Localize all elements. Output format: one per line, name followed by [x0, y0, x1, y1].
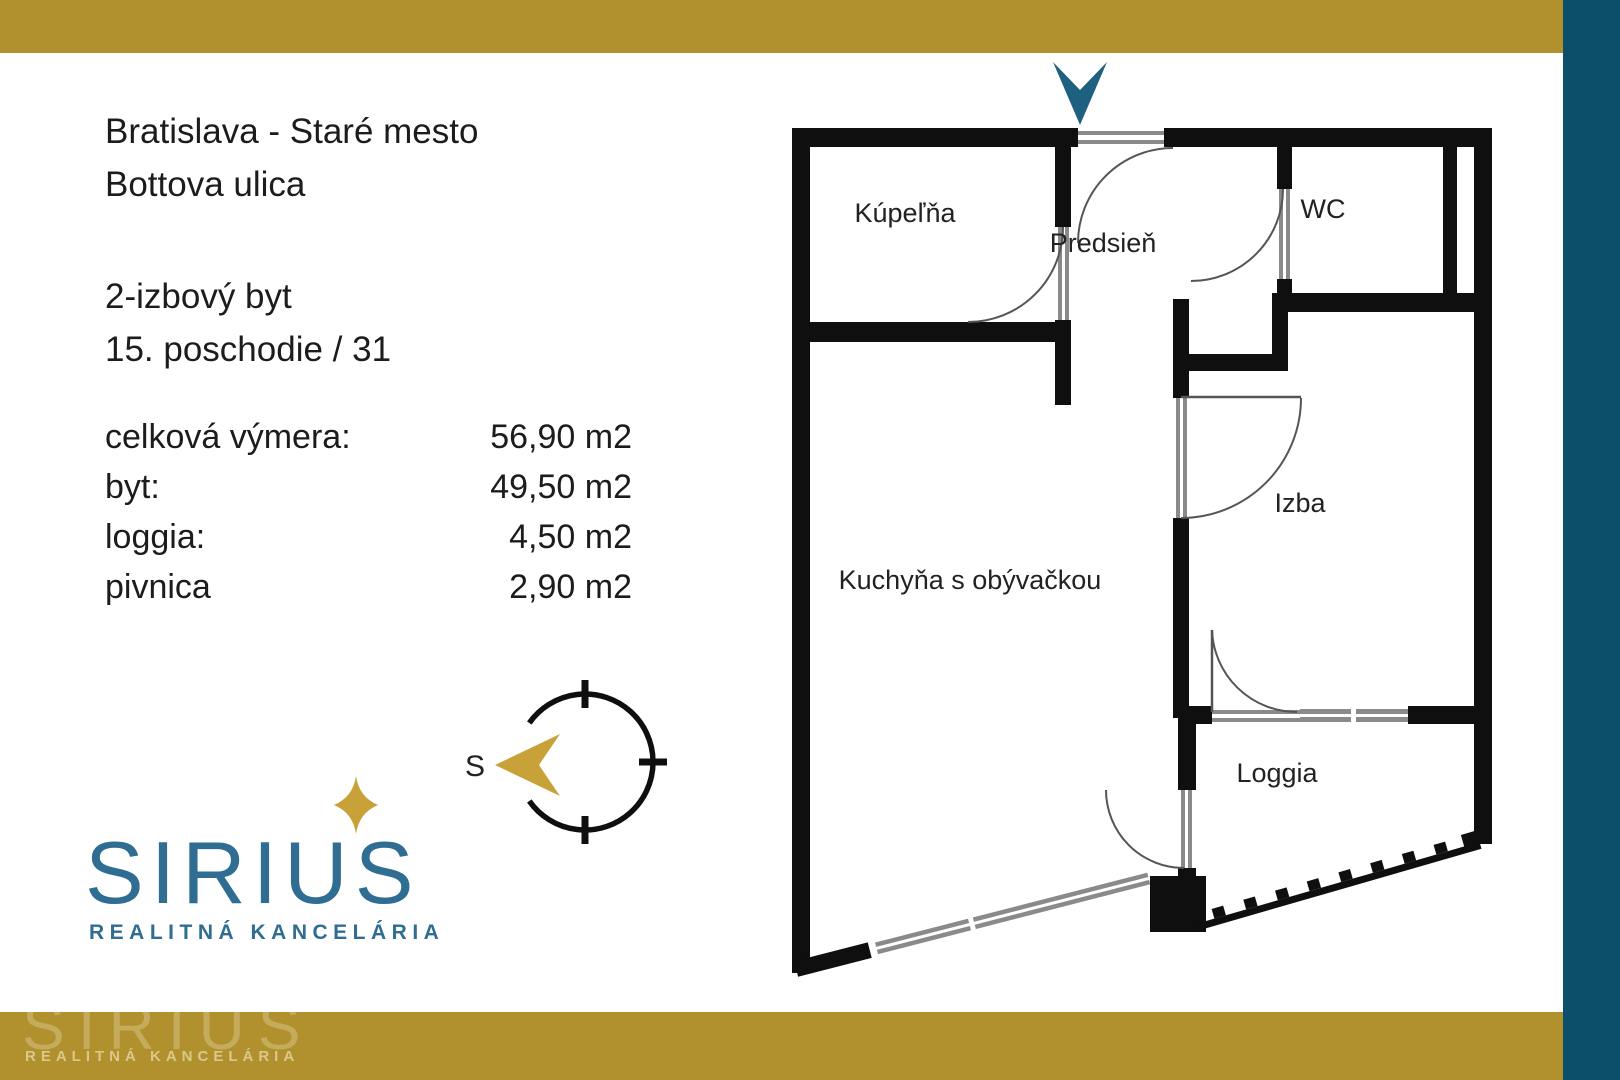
location-line2: Bottova ulica	[105, 158, 478, 211]
area-label: pivnica	[105, 568, 392, 607]
top-gold-bar	[0, 0, 1563, 53]
unit-type: 2-izbový byt	[105, 270, 391, 323]
area-row: pivnica 2,90 m2	[105, 562, 632, 612]
area-label: byt:	[105, 468, 392, 507]
logo-star-icon	[334, 776, 378, 834]
unit-block: 2-izbový byt 15. poschodie / 31	[105, 270, 391, 376]
area-value: 56,90 m2	[392, 418, 632, 457]
room-label-loggia: Loggia	[1236, 758, 1318, 788]
area-row: loggia: 4,50 m2	[105, 512, 632, 562]
room-label-izba: Izba	[1274, 488, 1326, 518]
area-label: loggia:	[105, 518, 392, 557]
location-line1: Bratislava - Staré mesto	[105, 105, 478, 158]
area-label: celková výmera:	[105, 418, 392, 457]
area-row: byt: 49,50 m2	[105, 462, 632, 512]
watermark-tagline: REALITNÁ KANCELÁRIA	[25, 1048, 299, 1065]
area-row: celková výmera: 56,90 m2	[105, 412, 632, 462]
flyer-canvas: Bratislava - Staré mesto Bottova ulica 2…	[0, 0, 1620, 1080]
compass-ring	[529, 694, 653, 830]
floor-plan: Kúpeľňa Predsieň WC Izba Kuchyňa s obýva…	[780, 55, 1500, 1010]
room-label-predsien: Predsieň	[1050, 228, 1157, 258]
area-table: celková výmera: 56,90 m2 byt: 49,50 m2 l…	[105, 412, 632, 612]
loggia-railing	[1192, 831, 1482, 931]
loggia-room-door	[1212, 630, 1300, 722]
room-label-wc: WC	[1301, 194, 1346, 224]
room-label-kupelna: Kúpeľňa	[855, 198, 957, 228]
agency-logo: SIRIUS	[85, 822, 420, 924]
unit-floor: 15. poschodie / 31	[105, 323, 391, 376]
area-value: 4,50 m2	[392, 518, 632, 557]
compass-north-arrow	[495, 734, 560, 796]
kitchen-loggia-door	[1106, 790, 1192, 868]
area-value: 49,50 m2	[392, 468, 632, 507]
kitchen-window-wall	[794, 871, 1151, 977]
compass-direction-label: S	[465, 750, 485, 783]
agency-tagline: REALITNÁ KANCELÁRIA	[89, 921, 444, 945]
entrance-arrow-icon	[1053, 62, 1107, 125]
compass-icon: S	[450, 648, 680, 868]
wc-door	[1191, 189, 1290, 281]
room-label-kuchyna: Kuchyňa s obývačkou	[839, 565, 1102, 595]
right-teal-band	[1563, 0, 1620, 1080]
entrance-door	[1078, 131, 1173, 243]
location-block: Bratislava - Staré mesto Bottova ulica	[105, 105, 478, 211]
izba-window	[1300, 708, 1408, 723]
bottom-gold-bar: SIRIUS REALITNÁ KANCELÁRIA	[0, 1012, 1563, 1080]
area-value: 2,90 m2	[392, 568, 632, 607]
